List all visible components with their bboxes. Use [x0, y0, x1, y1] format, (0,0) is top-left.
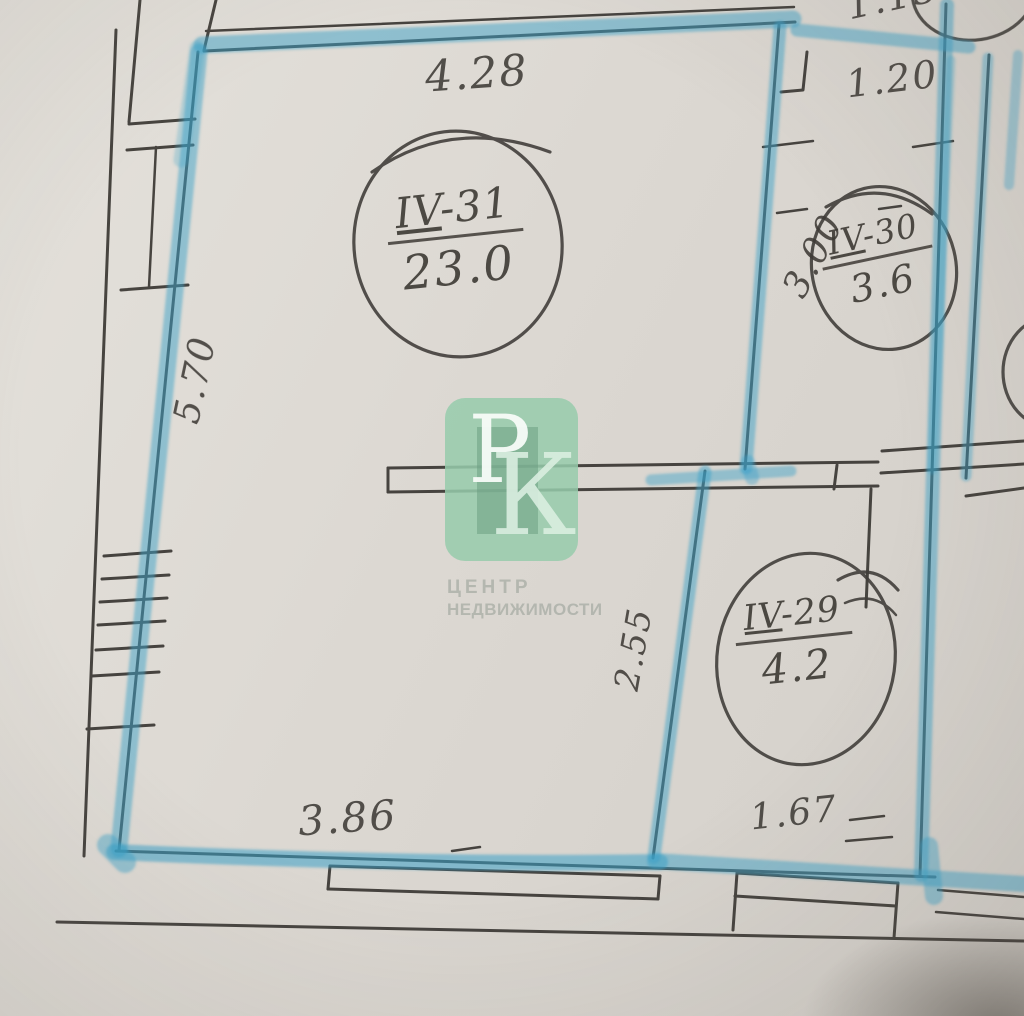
- room-label-iv29: IV-29 4.2: [731, 588, 858, 697]
- dimension-bottom-right-width: 1.67: [748, 791, 839, 836]
- watermark-caption-line1: ЦЕНТР: [447, 577, 532, 599]
- dimension-bottom-width: 3.86: [297, 795, 399, 843]
- watermark-letter-k: К: [490, 440, 577, 552]
- room-suffix: -31: [437, 177, 512, 233]
- dimension-top-width: 4.28: [424, 49, 530, 99]
- room-area: 4.2: [759, 639, 835, 694]
- floorplan-photo: Р К ЦЕНТР НЕДВИЖИМОСТИ 4.28 1.13 1.20 5.…: [0, 0, 1024, 1016]
- room-area: 23.0: [400, 235, 518, 301]
- dimension-corridor-width: 1.20: [844, 54, 941, 103]
- room-circle-partial-right: [1003, 316, 1024, 428]
- room-suffix: -29: [779, 589, 842, 635]
- room-label-iv31: IV-31 23.0: [382, 176, 529, 303]
- window-symbol-bottom-left: [328, 866, 660, 899]
- room-numeral: IV: [392, 185, 442, 238]
- room-numeral: IV: [741, 595, 783, 639]
- watermark-caption-line2: НЕДВИЖИМОСТИ: [447, 600, 603, 620]
